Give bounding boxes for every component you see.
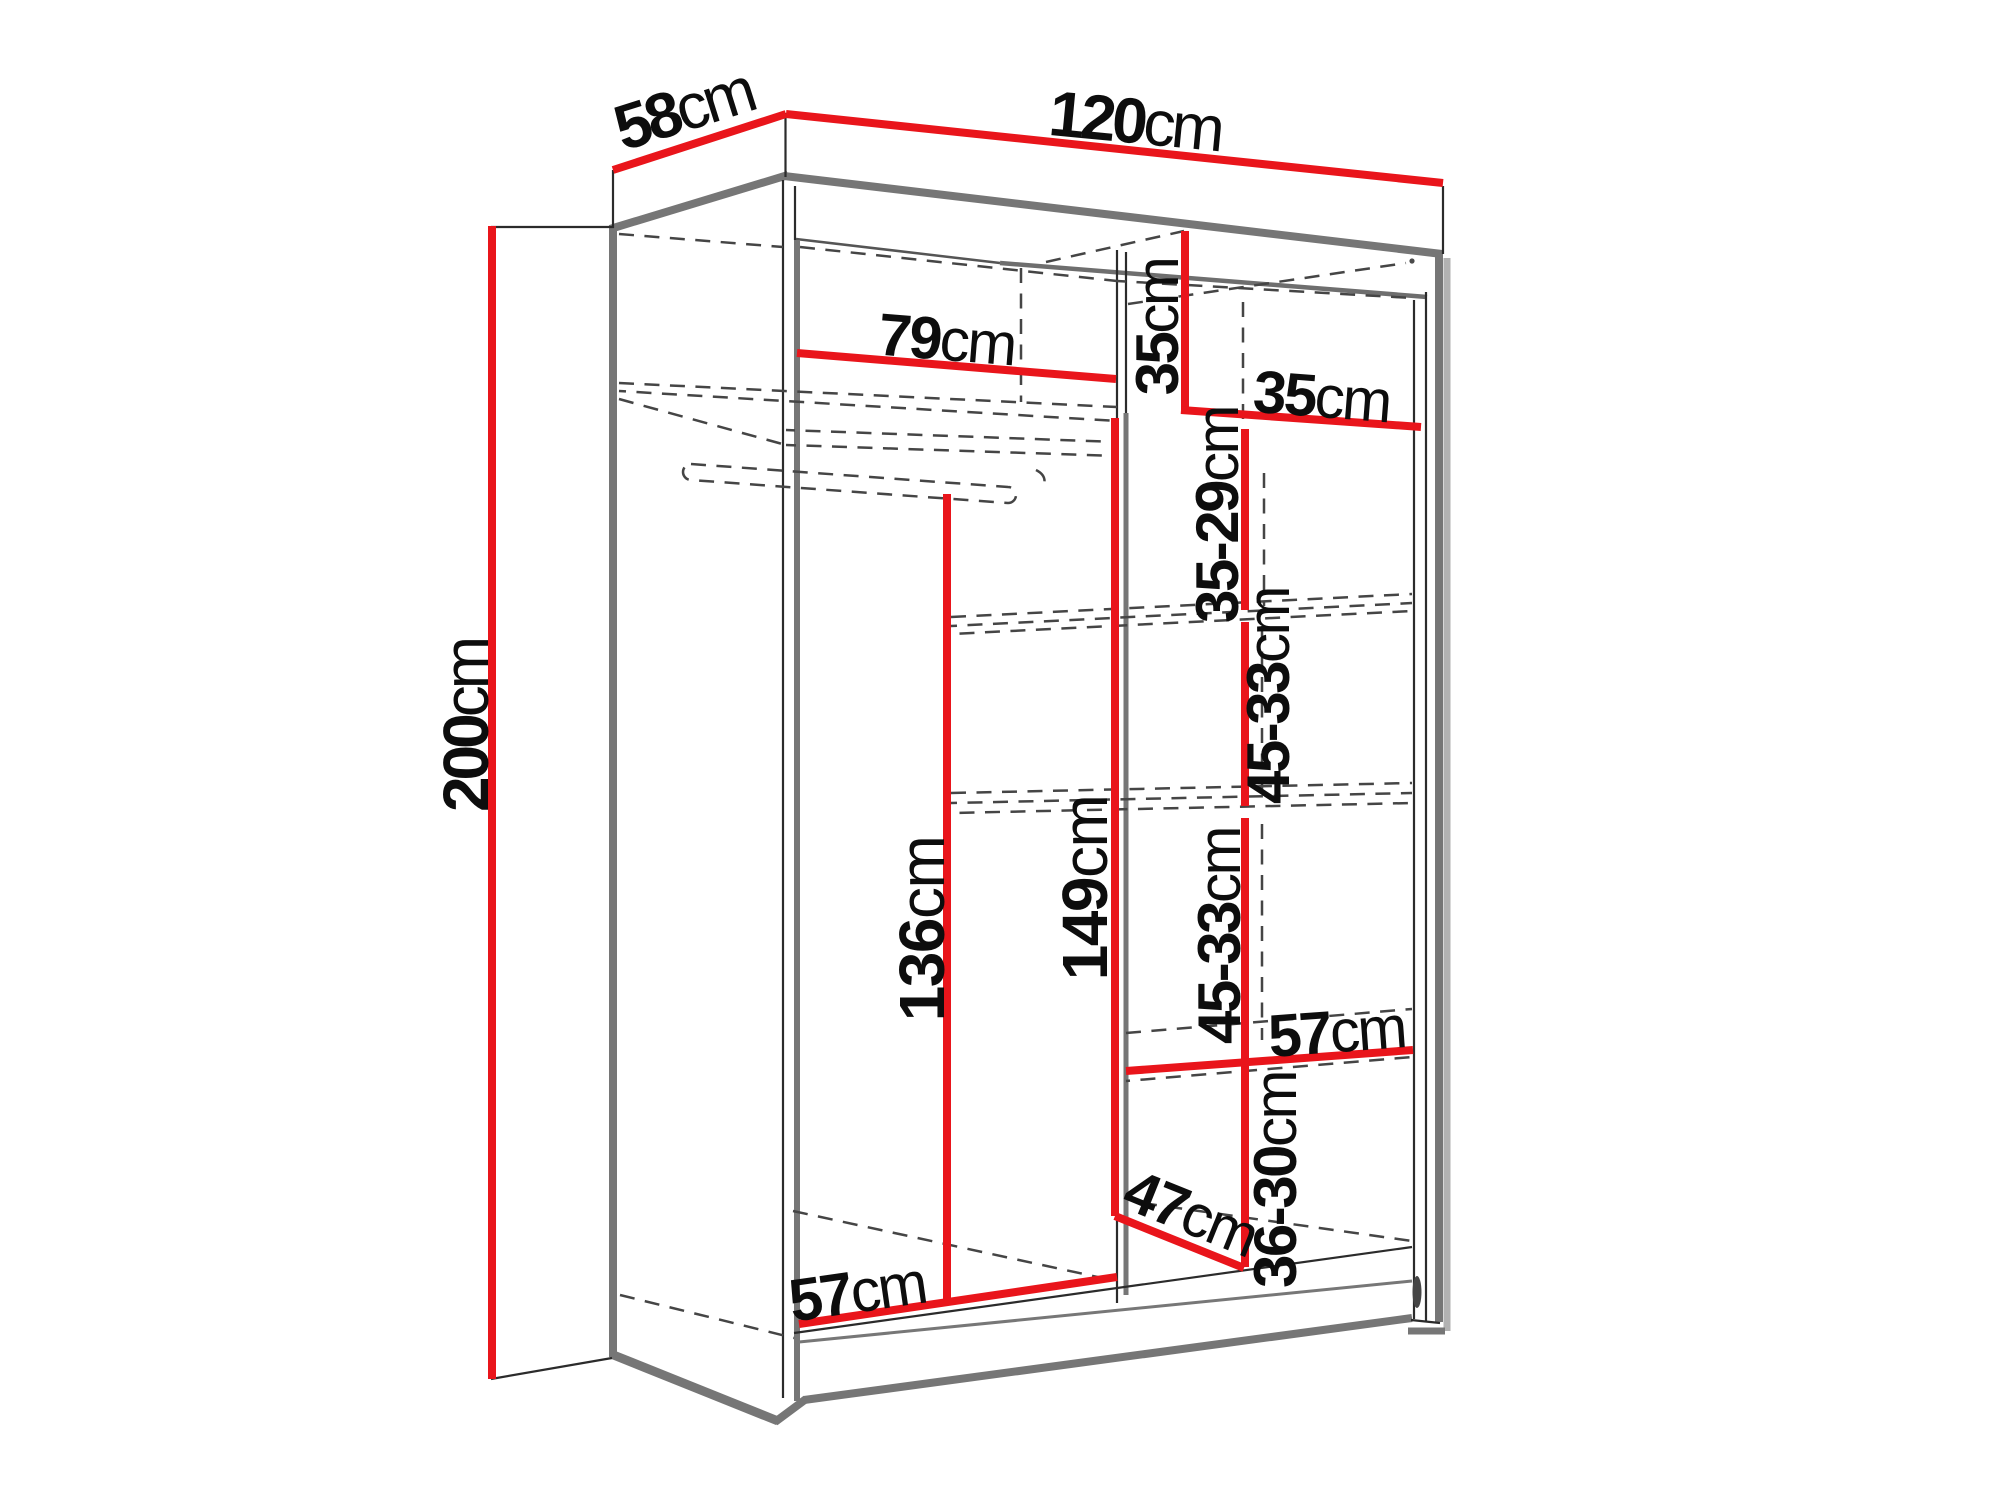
svg-text:35cm: 35cm: [1124, 259, 1191, 396]
svg-text:45-33cm: 45-33cm: [1235, 588, 1302, 804]
svg-text:79cm: 79cm: [876, 301, 1018, 379]
svg-text:200cm: 200cm: [430, 639, 502, 812]
svg-text:45-33cm: 45-33cm: [1186, 828, 1253, 1044]
svg-text:57cm: 57cm: [1266, 993, 1407, 1070]
svg-text:136cm: 136cm: [886, 837, 958, 1022]
svg-text:149cm: 149cm: [1049, 796, 1121, 981]
svg-text:36-30cm: 36-30cm: [1242, 1072, 1309, 1288]
svg-text:35cm: 35cm: [1251, 358, 1393, 436]
